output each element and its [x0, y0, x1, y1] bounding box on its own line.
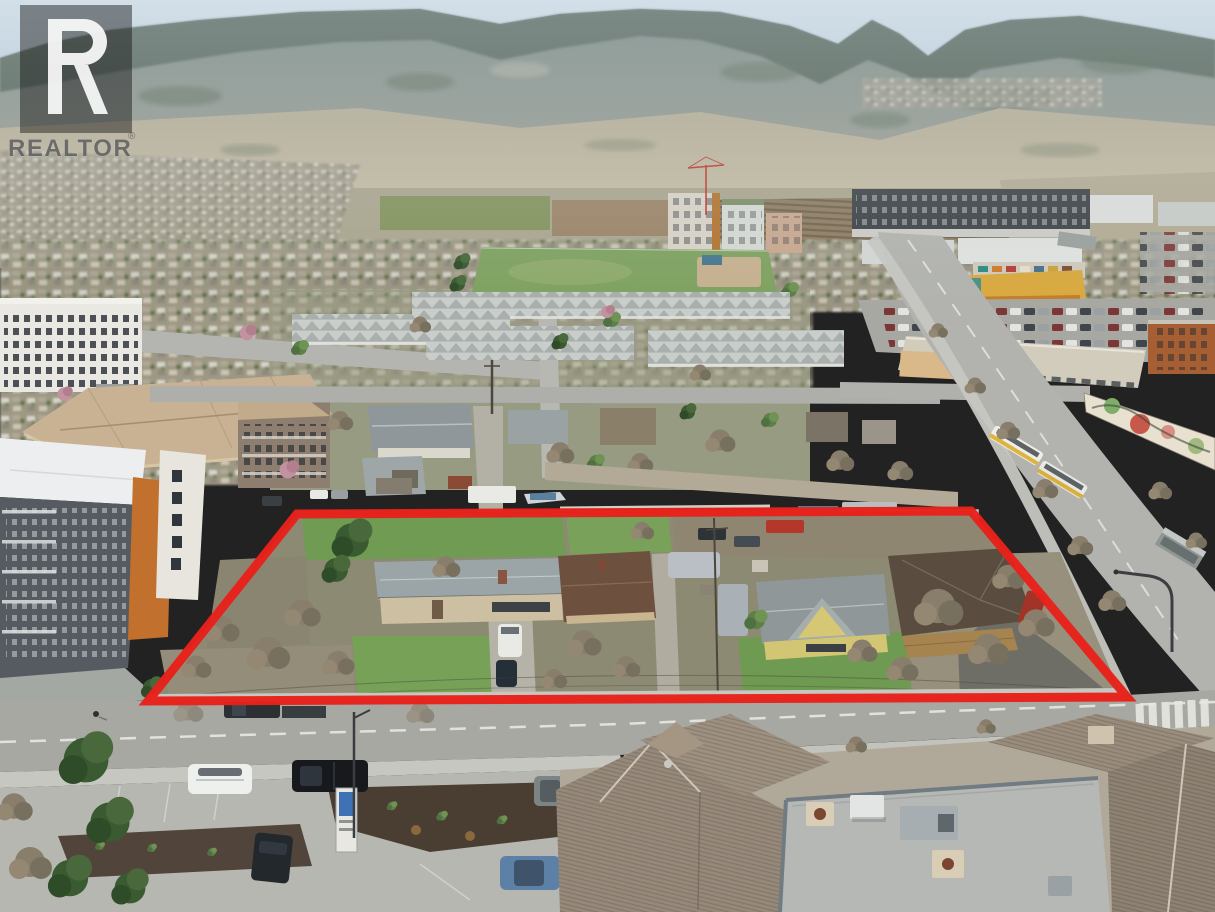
street: [150, 386, 940, 404]
brown-roof-house: [558, 551, 656, 624]
black-pickup: [292, 760, 368, 792]
dark-suv: [251, 832, 294, 884]
duplex-house: [368, 404, 474, 458]
dark-car: [496, 660, 517, 687]
realtor-watermark: REALTOR ®: [8, 5, 136, 162]
registered-trademark-symbol: ®: [128, 131, 136, 142]
property-site: [148, 511, 1127, 706]
white-suv: [188, 764, 252, 794]
watermark-label: REALTOR: [8, 135, 132, 162]
atmospheric-haze: [0, 0, 1215, 300]
red-pickup: [766, 520, 804, 533]
rust-building: [1148, 320, 1215, 374]
blue-sedan: [500, 856, 560, 890]
rv-trailer: [468, 486, 516, 503]
aerial-photo: REALTOR ®: [0, 0, 1215, 912]
